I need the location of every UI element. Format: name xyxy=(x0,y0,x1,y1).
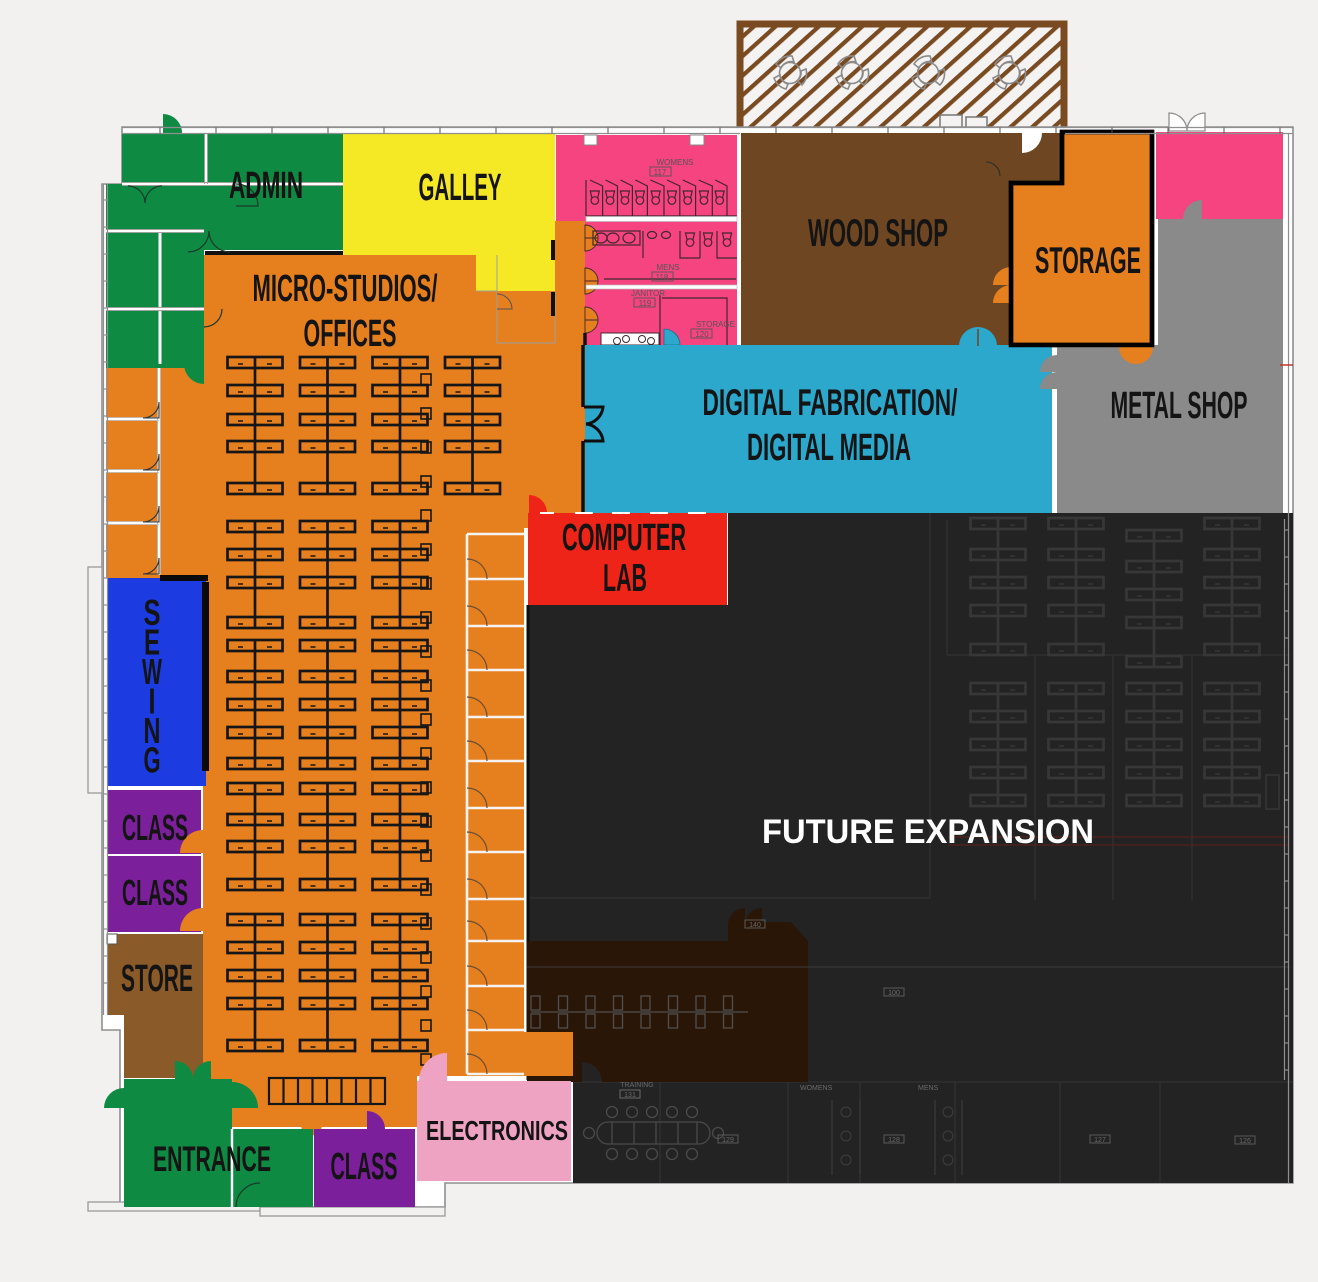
svg-text:STORAGE: STORAGE xyxy=(1035,240,1141,281)
svg-text:WOOD SHOP: WOOD SHOP xyxy=(808,212,948,255)
svg-text:GALLEY: GALLEY xyxy=(419,167,502,209)
svg-text:LAB: LAB xyxy=(603,557,647,600)
svg-text:129: 129 xyxy=(722,1137,734,1144)
svg-text:COMPUTER: COMPUTER xyxy=(562,517,686,559)
svg-text:100: 100 xyxy=(888,990,900,997)
svg-text:127: 127 xyxy=(1094,1137,1106,1144)
svg-text:126: 126 xyxy=(1239,1138,1251,1145)
svg-text:DIGITAL MEDIA: DIGITAL MEDIA xyxy=(747,427,911,469)
svg-text:DIGITAL FABRICATION/: DIGITAL FABRICATION/ xyxy=(703,382,958,423)
svg-text:CLASS: CLASS xyxy=(122,872,188,913)
svg-text:MENS: MENS xyxy=(656,263,679,272)
svg-text:STORAGE: STORAGE xyxy=(696,320,735,329)
svg-text:MENS: MENS xyxy=(918,1085,939,1092)
svg-text:131: 131 xyxy=(624,1092,636,1099)
svg-text:ADMIN: ADMIN xyxy=(229,165,303,207)
svg-text:G: G xyxy=(144,740,161,781)
svg-text:WOMENS: WOMENS xyxy=(800,1085,833,1092)
svg-text:128: 128 xyxy=(888,1137,900,1144)
svg-text:ELECTRONICS: ELECTRONICS xyxy=(426,1115,568,1146)
svg-text:OFFICES: OFFICES xyxy=(304,313,397,355)
svg-text:CLASS: CLASS xyxy=(331,1146,398,1188)
svg-text:ENTRANCE: ENTRANCE xyxy=(153,1140,271,1179)
svg-text:MICRO-STUDIOS/: MICRO-STUDIOS/ xyxy=(253,268,438,310)
svg-text:FUTURE EXPANSION: FUTURE EXPANSION xyxy=(762,813,1094,851)
svg-text:WOMENS: WOMENS xyxy=(657,158,694,167)
svg-text:CLASS: CLASS xyxy=(122,807,188,848)
svg-text:140: 140 xyxy=(749,922,761,929)
svg-text:STORE: STORE xyxy=(121,958,193,1000)
svg-text:METAL SHOP: METAL SHOP xyxy=(1111,385,1248,427)
svg-text:TRAINING: TRAINING xyxy=(620,1082,653,1089)
svg-text:JANITOR: JANITOR xyxy=(631,289,665,298)
